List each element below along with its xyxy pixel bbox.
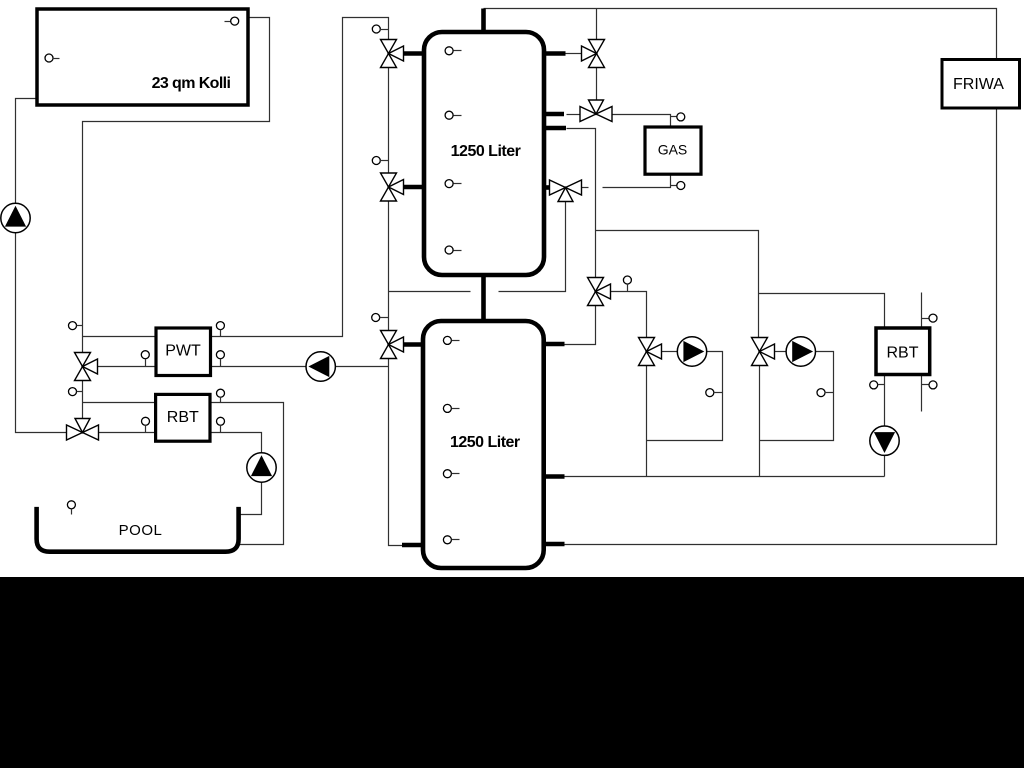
svg-text:RBT: RBT (167, 409, 199, 426)
svg-text:POOL: POOL (119, 522, 163, 539)
svg-text:1250 Liter: 1250 Liter (451, 143, 521, 160)
svg-text:1250 Liter: 1250 Liter (450, 434, 520, 451)
svg-text:23 qm Kolli: 23 qm Kolli (152, 75, 231, 92)
svg-text:RBT: RBT (887, 345, 919, 362)
svg-text:FRIWA: FRIWA (953, 76, 1004, 93)
svg-text:PWT: PWT (165, 343, 201, 360)
svg-text:GAS: GAS (658, 142, 688, 158)
